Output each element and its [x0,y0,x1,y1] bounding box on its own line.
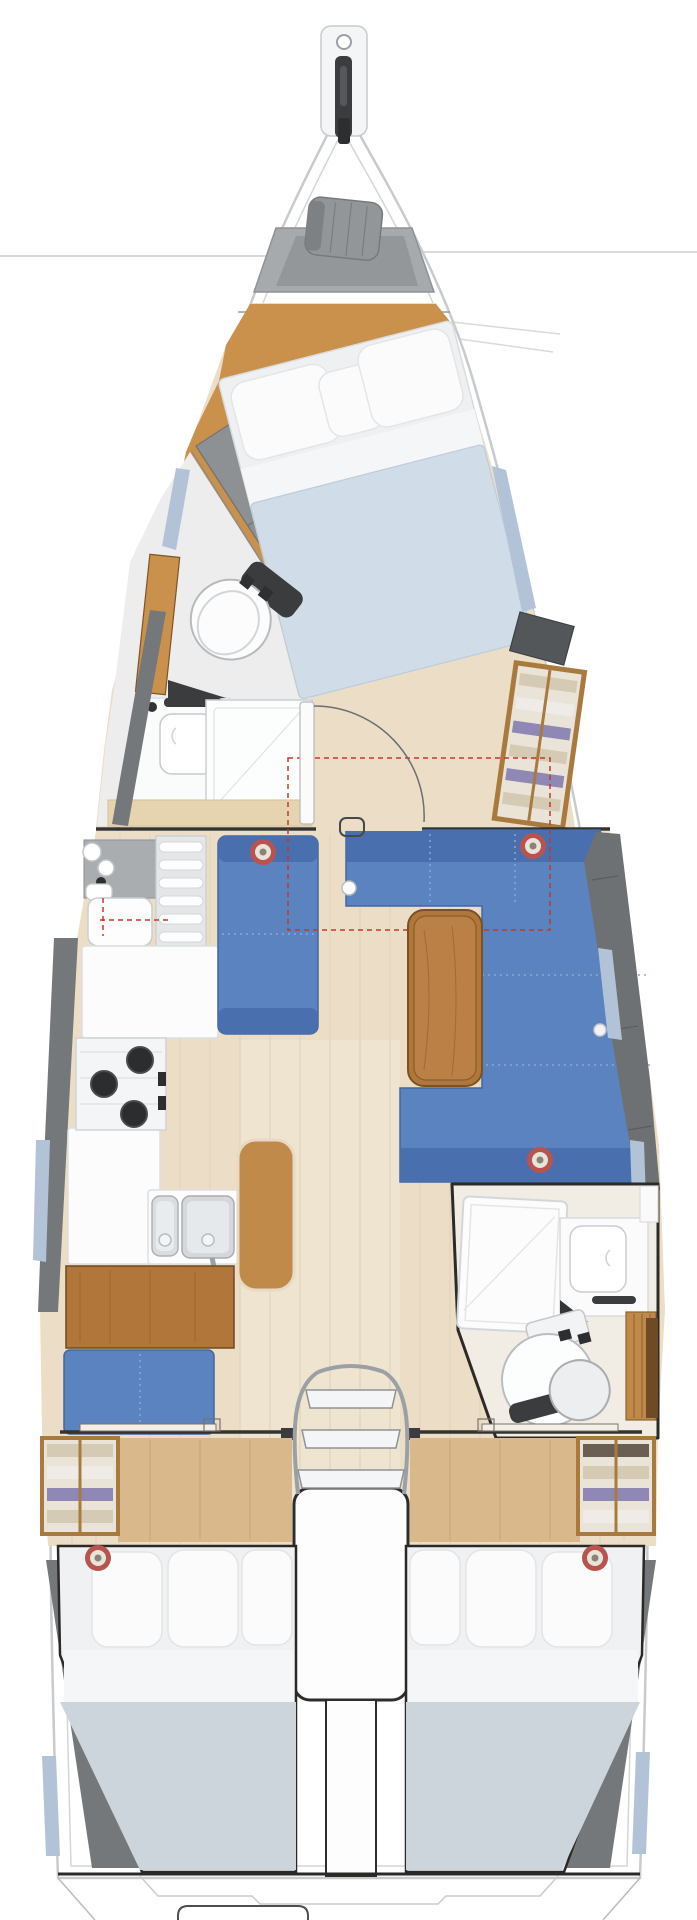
stove-burner [121,1101,147,1127]
aft-faucet [592,1296,636,1304]
berth-pillow [168,1550,238,1647]
shower-pan [457,1196,568,1333]
bottle-icon [98,860,114,876]
aft-cabin-floor-port [118,1438,292,1542]
door-panel [300,702,314,824]
rack-slat [159,932,203,942]
sink-drain-icon [159,1234,171,1246]
wardrobe-port [40,1436,120,1536]
portlight-icon [594,1024,606,1036]
speaker-icon [85,1545,111,1571]
furling-drum-icon [337,35,351,49]
berth-sheet [408,1650,638,1702]
engine-box [294,1488,408,1700]
rack-slat [159,914,203,924]
port-cabin-door-open [80,1424,216,1431]
speaker-icon [527,1147,553,1173]
berth-pillow [410,1550,460,1645]
rack-slat [159,842,203,852]
aft-head [452,1184,658,1438]
rack-slat [159,896,203,906]
starboard-settee-headrest [346,830,606,862]
cockpit-pedestal-base [326,1700,376,1876]
aft-cabin-floor-starboard [410,1438,580,1542]
rack-slat [159,878,203,888]
berth-sheet [64,1650,294,1702]
transom-locker-hatch [178,1906,308,1920]
aft-shower-stall [457,1196,568,1333]
platform-edge-lines [58,1878,640,1920]
fridge-lid [88,898,152,946]
wardrobe-starboard [576,1436,656,1536]
speaker-icon [250,839,276,865]
berth-pillow [242,1550,292,1645]
floor-plan-canvas [0,0,697,1920]
stove-knob [158,1072,166,1086]
companionway-step [302,1430,400,1448]
port-settee-footrest [218,1008,318,1034]
companionway-step [298,1470,404,1488]
starboard-settee-footrest [400,1148,654,1182]
speaker-icon [520,833,546,859]
anchor-roller-tip [338,118,350,144]
nav-bench-tan [238,1140,294,1290]
galley-worktop [82,946,218,1038]
aft-head-shelf [640,1186,658,1222]
rack-slat [159,860,203,870]
vanity-front [108,800,312,826]
anchor-roller-slot [340,66,347,106]
sail-bag [304,196,384,261]
galley-counter-leg [68,1128,160,1264]
starboard-cabin-door-open [482,1424,618,1431]
salon-table-inner [414,916,476,1080]
locker-door [646,1318,658,1418]
salon-table [408,910,482,1086]
sheet-line-starboard [452,322,560,352]
stove-burner [127,1047,153,1073]
sink-drain-icon [202,1234,214,1246]
bow [321,26,367,144]
stove-knob [158,1096,166,1110]
aft-washbasin [570,1226,626,1292]
stove-burner [91,1071,117,1097]
transom [58,1874,640,1920]
door-opening [316,824,422,831]
table-leg-socket [342,881,356,895]
bottle-icon [83,843,101,861]
companionway-step [306,1390,396,1408]
port-settee-seat [218,836,318,1034]
nav-bench-blue [64,1350,214,1434]
port-settee [218,836,318,1034]
speaker-icon [582,1545,608,1571]
berth-pillow [466,1550,536,1647]
swim-platform-outline [140,1876,558,1904]
